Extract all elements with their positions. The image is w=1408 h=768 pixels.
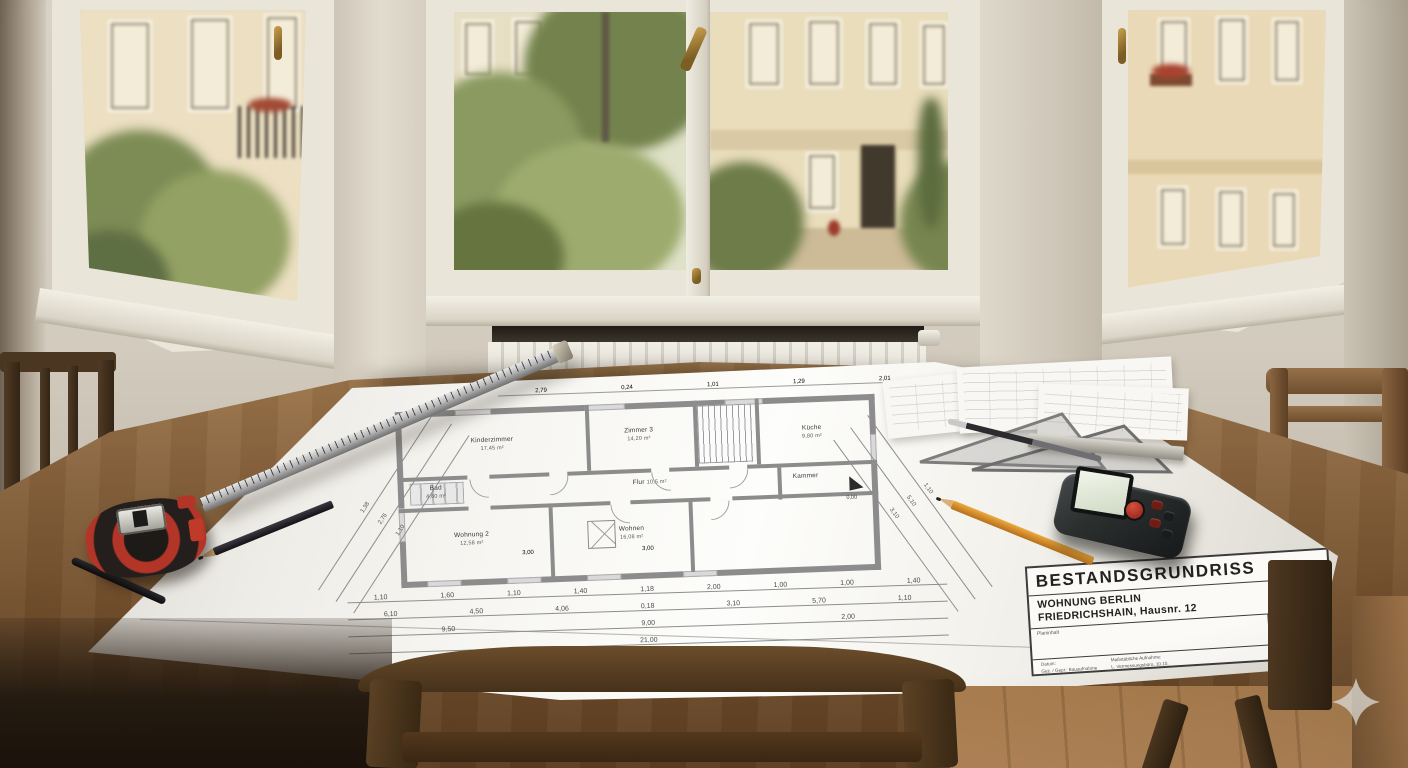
tree-trunk bbox=[602, 12, 609, 142]
dim-value: 0,18 bbox=[641, 603, 655, 610]
left-window-view bbox=[80, 10, 306, 310]
front-chair-top-rail bbox=[358, 646, 966, 692]
dim-value: 2,79 bbox=[535, 388, 547, 394]
cypress bbox=[918, 98, 944, 228]
table-leg bbox=[1268, 560, 1332, 710]
dim-value: 9,00 bbox=[641, 620, 655, 627]
dim-value: 0,24 bbox=[621, 385, 633, 391]
center-window-sill bbox=[410, 296, 994, 326]
dim-value: 3,10 bbox=[726, 600, 740, 607]
dim-value: 3,10 bbox=[888, 507, 900, 520]
dim-value: 2,76 bbox=[377, 513, 388, 526]
laser-display bbox=[1070, 466, 1134, 521]
front-chair-lower-rail bbox=[402, 732, 922, 762]
right-window-handle bbox=[1118, 28, 1126, 64]
dim-value: 1,29 bbox=[793, 379, 805, 385]
sparkle-watermark-icon bbox=[1332, 678, 1380, 726]
flower-box-red bbox=[248, 98, 292, 112]
tape-measure-button bbox=[177, 495, 196, 509]
dim-value: 5,10 bbox=[905, 495, 917, 508]
foreground-shadow bbox=[0, 618, 392, 768]
room-flur: Flur 10,5 m² bbox=[633, 478, 667, 487]
center-window bbox=[418, 0, 984, 302]
balcony-railing bbox=[238, 106, 306, 158]
right-window-glass bbox=[1124, 10, 1326, 296]
dim-value: 4,06 bbox=[555, 605, 569, 612]
dim-value: 1,38 bbox=[360, 501, 371, 514]
dim-value: 1,01 bbox=[707, 382, 719, 388]
dim-value: 1,10 bbox=[507, 590, 521, 597]
room-kueche: Küche 9,80 m² bbox=[802, 424, 823, 441]
photo-scene: 0,00 Kinderzimmer 17,45 m² Zimmer 3 14,2… bbox=[0, 0, 1408, 768]
radiator-valve bbox=[918, 330, 940, 346]
dim-value: 1,10 bbox=[898, 595, 912, 602]
red-accent bbox=[828, 220, 840, 236]
room-zimmer3: Zimmer 3 14,20 m² bbox=[624, 426, 654, 443]
front-chair-back bbox=[358, 646, 966, 768]
dim-value: 1,00 bbox=[773, 582, 787, 589]
tape-measure-lock-button bbox=[188, 518, 205, 542]
dim-value: 1,10 bbox=[395, 524, 406, 537]
left-window-handle bbox=[274, 26, 282, 60]
dim-value: 5,70 bbox=[812, 597, 826, 604]
building-door bbox=[858, 142, 898, 234]
dim-value: 2,00 bbox=[707, 584, 721, 591]
dim-value: 3,00 bbox=[522, 550, 534, 556]
center-window-right-glass bbox=[710, 12, 948, 270]
dim-value: 1,40 bbox=[574, 588, 588, 595]
center-left-view-trees bbox=[454, 12, 686, 270]
center-right-view-building bbox=[710, 12, 948, 270]
right-window-view bbox=[1124, 10, 1326, 296]
center-window-latch bbox=[692, 268, 701, 284]
room-wohnung2: Wohnung 2 12,58 m² bbox=[454, 531, 490, 549]
dim-value: 3,00 bbox=[642, 546, 654, 552]
room-kammer: Kammer bbox=[793, 472, 819, 481]
red-flowers bbox=[1152, 64, 1190, 78]
radiator-slot bbox=[492, 326, 924, 342]
dim-value: 1,18 bbox=[640, 586, 654, 593]
left-window-glass bbox=[80, 10, 306, 310]
dim-value: 1,60 bbox=[440, 592, 454, 599]
center-window-left-glass bbox=[454, 12, 686, 270]
room-wohnen: Wohnen 16,08 m² bbox=[619, 525, 645, 542]
dim-value: 1,10 bbox=[922, 482, 934, 495]
dim-value: 4,50 bbox=[469, 608, 483, 615]
staircase bbox=[697, 404, 753, 464]
dim-value: 9,50 bbox=[441, 626, 455, 633]
right-window bbox=[1098, 0, 1352, 332]
dim-value: 1,00 bbox=[840, 580, 854, 587]
dim-total: 21,00 bbox=[640, 637, 658, 645]
dim-value: 2,00 bbox=[841, 614, 855, 621]
